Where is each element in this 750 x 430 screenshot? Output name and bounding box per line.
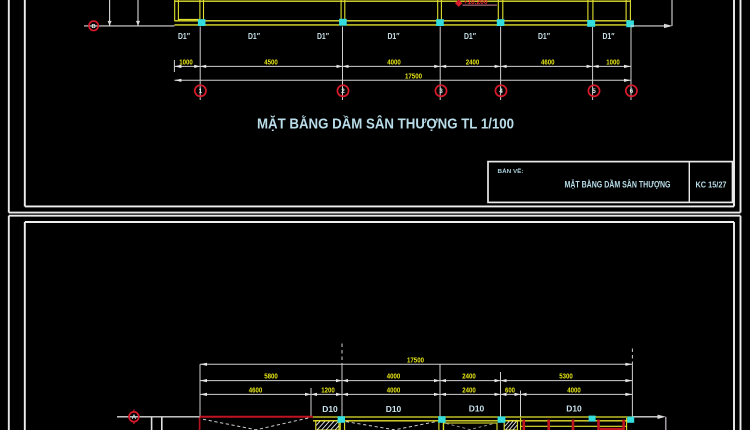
svg-text:4000: 4000 [387,388,401,395]
svg-text:D1″: D1″ [538,31,550,41]
svg-text:600: 600 [505,388,515,395]
svg-text:4: 4 [499,88,503,95]
svg-text:5800: 5800 [264,374,278,381]
svg-text:1: 1 [199,88,203,95]
svg-text:5: 5 [592,88,596,95]
svg-text:BẢN VẼ:: BẢN VẼ: [498,168,524,175]
svg-text:D1″: D1″ [178,31,190,41]
svg-text:B: B [92,24,96,30]
svg-text:4600: 4600 [541,60,555,67]
svg-text:2400: 2400 [466,60,480,67]
svg-text:2: 2 [341,88,345,95]
svg-text:D1″: D1″ [317,31,329,41]
svg-text:MẶT BẰNG DẦM SÂN THƯỢNG TL 1/1: MẶT BẰNG DẦM SÂN THƯỢNG TL 1/100 [257,115,514,133]
svg-text:6: 6 [630,88,634,95]
svg-text:D10: D10 [322,404,338,414]
svg-text:4000: 4000 [387,60,401,67]
svg-text:A: A [132,415,137,421]
svg-text:D10: D10 [386,404,402,414]
svg-text:D10: D10 [469,404,485,414]
svg-text:1000: 1000 [179,60,193,67]
svg-text:4500: 4500 [264,60,278,67]
svg-text:MẶT BẰNG DẦM SÂN THƯỢNG: MẶT BẰNG DẦM SÂN THƯỢNG [565,178,671,189]
svg-text:17500: 17500 [405,74,422,81]
svg-text:2400: 2400 [462,388,476,395]
svg-text:4600: 4600 [249,388,263,395]
svg-text:D1″: D1″ [248,31,260,41]
svg-text:KC 15/27: KC 15/27 [696,180,727,189]
svg-text:3: 3 [439,88,443,95]
svg-text:2400: 2400 [462,374,476,381]
svg-text:D1″: D1″ [603,31,615,41]
svg-text:D1″: D1″ [464,31,476,41]
svg-text:5300: 5300 [559,374,573,381]
svg-text:17500: 17500 [407,357,424,364]
svg-text:1000: 1000 [606,60,620,67]
svg-text:4000: 4000 [387,374,401,381]
svg-text:4000: 4000 [567,388,581,395]
svg-text:D1″: D1″ [388,31,400,41]
svg-text:1200: 1200 [321,388,335,395]
svg-text:D10: D10 [566,404,582,414]
